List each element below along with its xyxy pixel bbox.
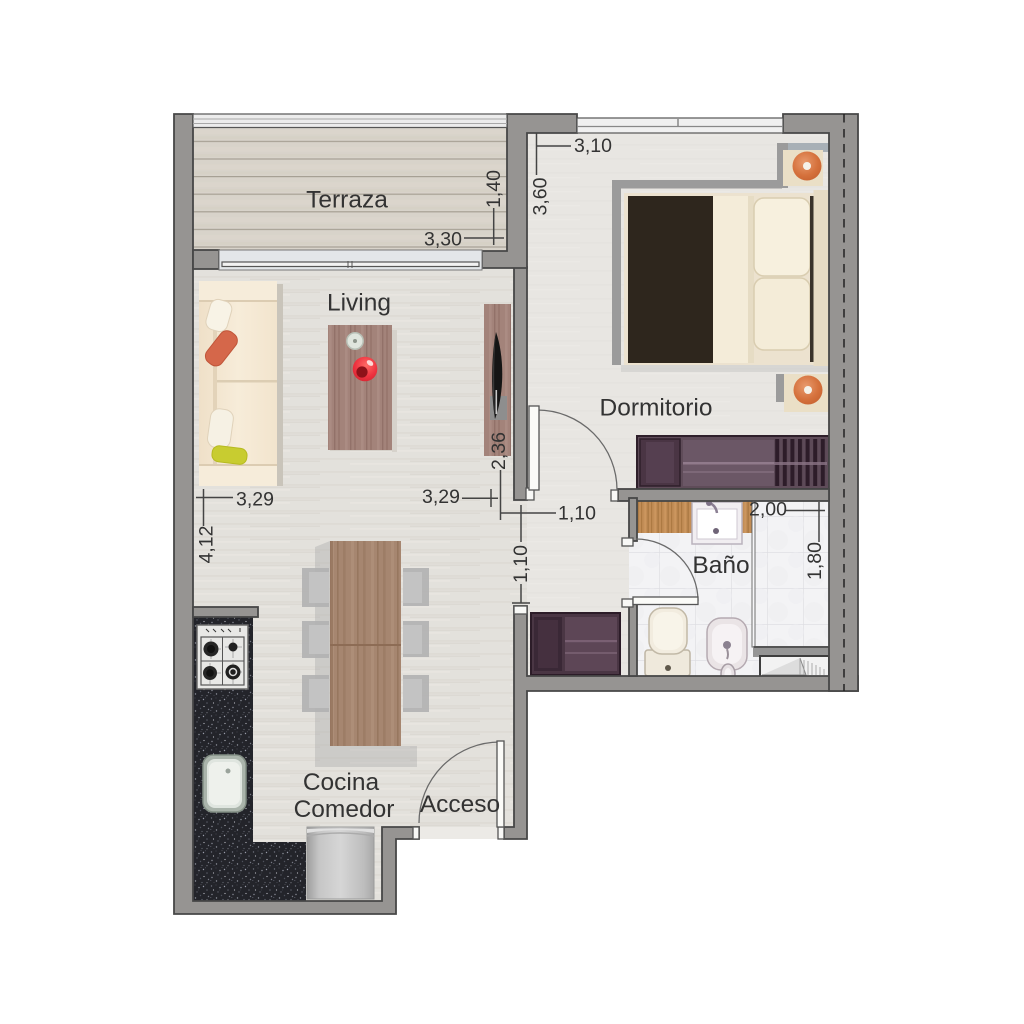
svg-text:3,30: 3,30 — [424, 229, 462, 251]
svg-text:1,40: 1,40 — [483, 170, 505, 208]
svg-text:1,10: 1,10 — [558, 503, 596, 525]
svg-text:Comedor: Comedor — [294, 796, 395, 823]
svg-text:3,10: 3,10 — [574, 135, 612, 157]
svg-text:Cocina: Cocina — [303, 769, 380, 796]
svg-text:2,00: 2,00 — [749, 499, 787, 521]
svg-text:2,36: 2,36 — [488, 432, 510, 470]
svg-text:Dormitorio: Dormitorio — [600, 395, 713, 422]
svg-text:Baño: Baño — [692, 552, 749, 579]
svg-text:3,29: 3,29 — [236, 489, 274, 511]
svg-text:Living: Living — [327, 290, 391, 317]
svg-text:Acceso: Acceso — [420, 791, 500, 818]
svg-text:1,80: 1,80 — [804, 542, 826, 580]
svg-text:1,10: 1,10 — [510, 545, 532, 583]
svg-text:3,60: 3,60 — [530, 177, 552, 215]
svg-text:Terraza: Terraza — [306, 187, 388, 214]
svg-text:3,29: 3,29 — [422, 486, 460, 508]
svg-text:4,12: 4,12 — [196, 526, 218, 564]
